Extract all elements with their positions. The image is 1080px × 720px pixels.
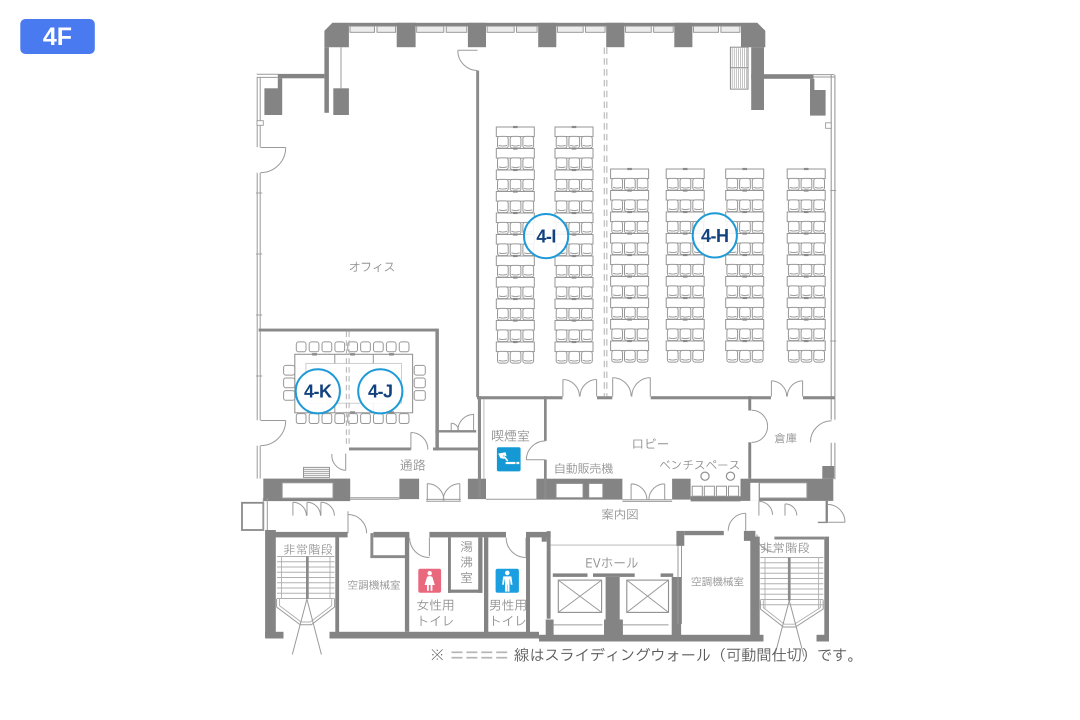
svg-text:4-H: 4-H [701,226,729,246]
svg-text:4-I: 4-I [536,227,556,247]
svg-text:4-K: 4-K [304,382,332,402]
svg-text:4F: 4F [43,23,72,51]
svg-text:4-J: 4-J [368,382,393,402]
